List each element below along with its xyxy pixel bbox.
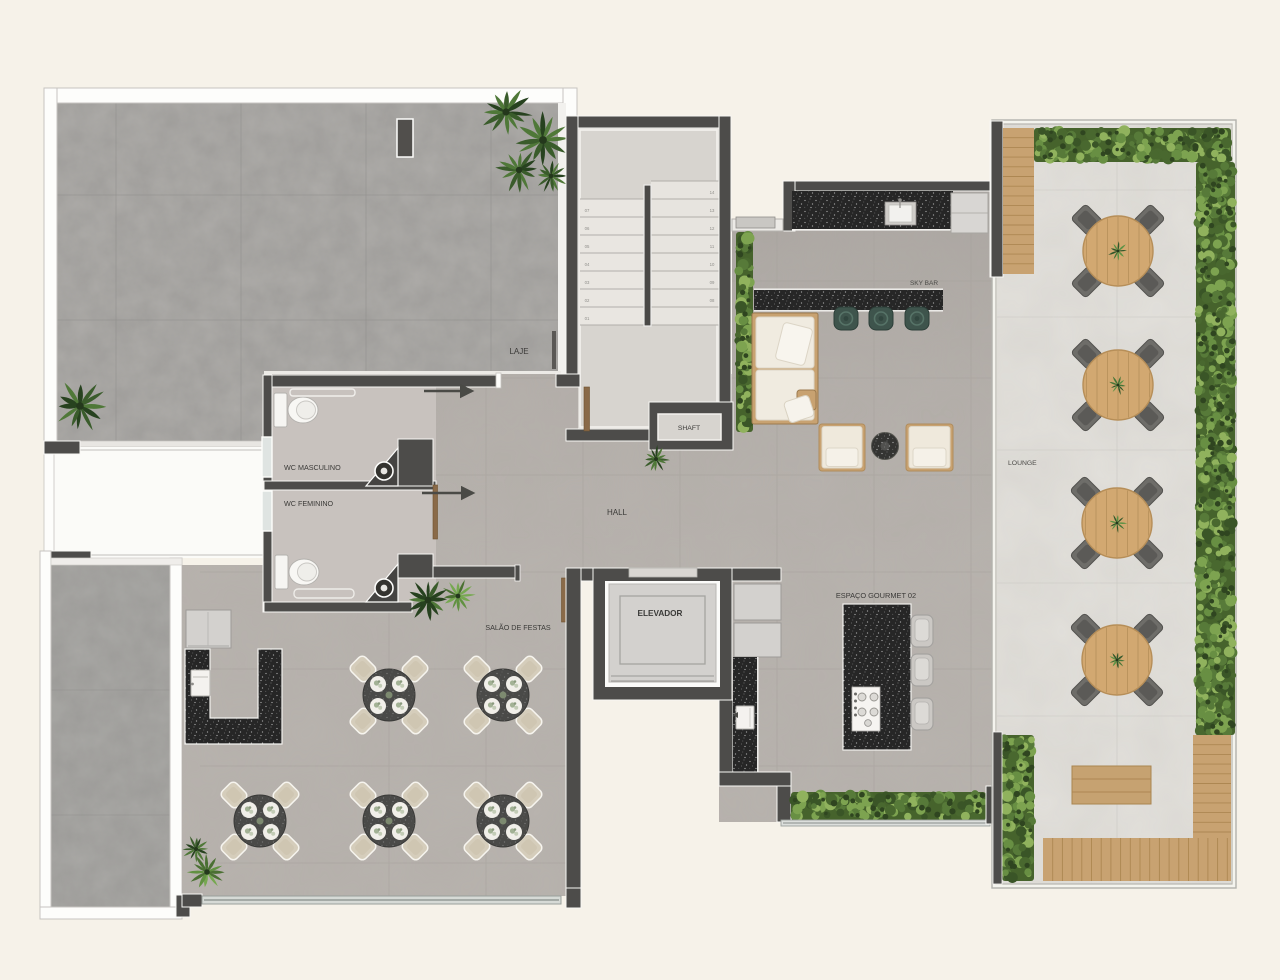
svg-text:14: 14 — [710, 190, 715, 195]
svg-text:06: 06 — [585, 226, 590, 231]
svg-text:04: 04 — [585, 262, 590, 267]
svg-text:08: 08 — [710, 298, 715, 303]
svg-text:09: 09 — [710, 280, 715, 285]
svg-text:13: 13 — [710, 208, 715, 213]
svg-text:10: 10 — [710, 262, 715, 267]
svg-text:05: 05 — [585, 244, 590, 249]
svg-text:SHAFT: SHAFT — [678, 425, 700, 432]
svg-text:02: 02 — [585, 298, 590, 303]
svg-text:12: 12 — [710, 226, 715, 231]
svg-text:01: 01 — [585, 316, 590, 321]
svg-text:SKY BAR: SKY BAR — [910, 280, 938, 287]
svg-text:HALL: HALL — [607, 508, 628, 517]
svg-text:ESPAÇO GOURMET 02: ESPAÇO GOURMET 02 — [836, 591, 916, 600]
svg-text:11: 11 — [710, 244, 715, 249]
svg-text:07: 07 — [585, 208, 590, 213]
svg-text:WC FEMININO: WC FEMININO — [284, 499, 334, 508]
svg-text:LOUNGE: LOUNGE — [1008, 460, 1037, 467]
svg-text:LAJE: LAJE — [509, 347, 528, 356]
svg-text:ELEVADOR: ELEVADOR — [638, 609, 683, 618]
svg-text:03: 03 — [585, 280, 590, 285]
svg-text:WC MASCULINO: WC MASCULINO — [284, 463, 341, 472]
svg-text:SALÃO DE FESTAS: SALÃO DE FESTAS — [485, 623, 551, 632]
